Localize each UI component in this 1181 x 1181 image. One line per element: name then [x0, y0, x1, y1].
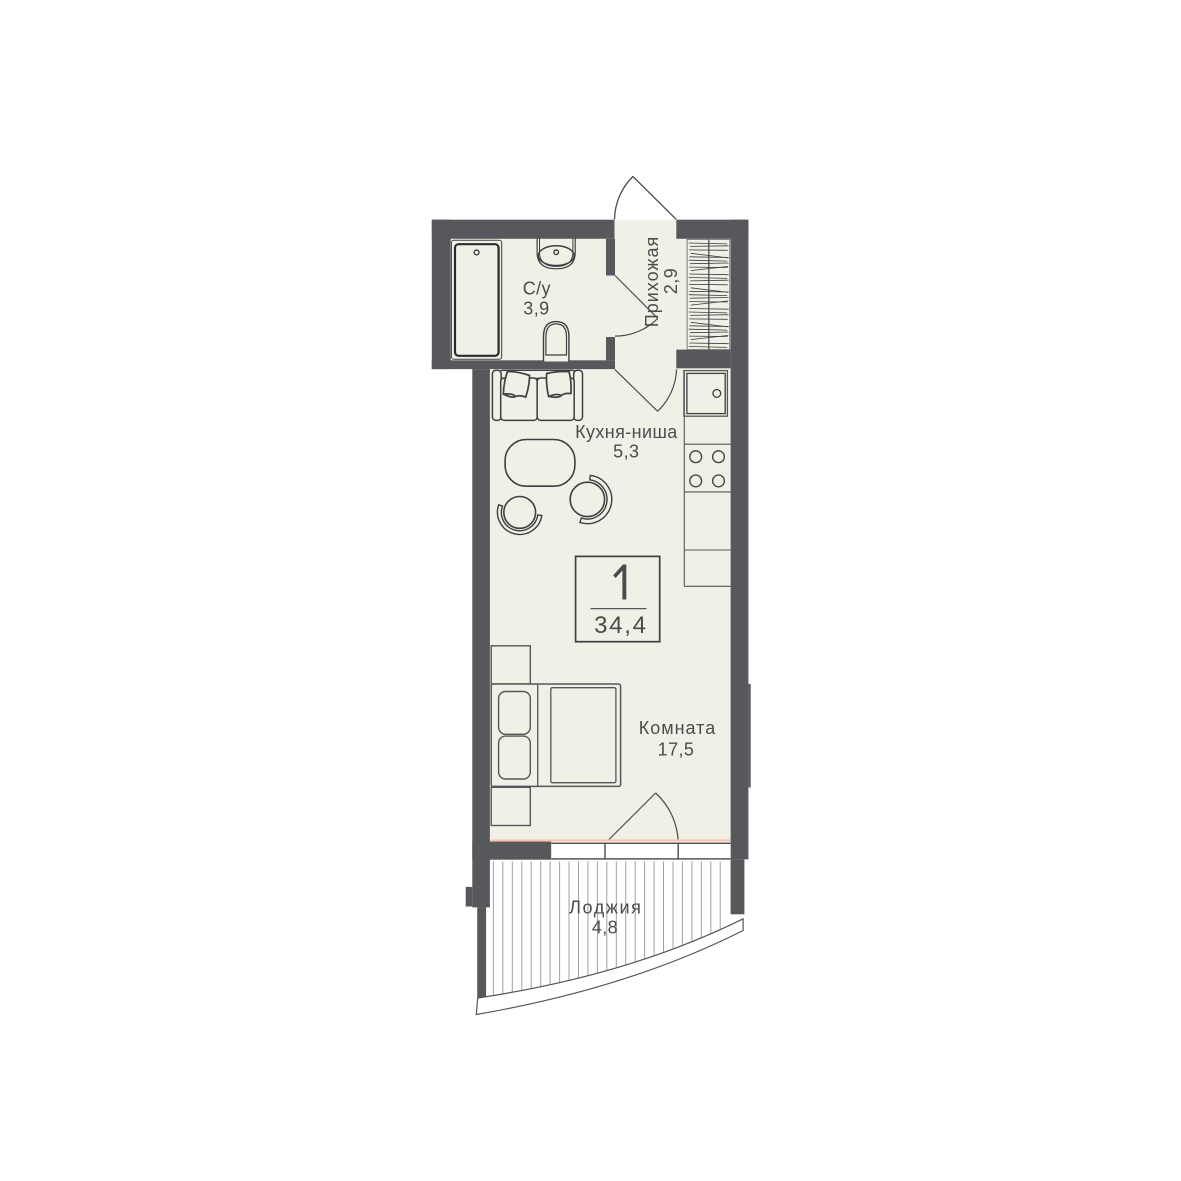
svg-text:2,9: 2,9 [661, 268, 681, 294]
svg-text:Кухня-ниша: Кухня-ниша [575, 422, 678, 442]
svg-text:Комната: Комната [639, 718, 716, 738]
svg-text:3,9: 3,9 [523, 298, 549, 318]
svg-text:5,3: 5,3 [613, 442, 639, 462]
svg-text:4,8: 4,8 [592, 918, 618, 938]
svg-text:Лоджия: Лоджия [569, 898, 642, 918]
svg-text:С/у: С/у [523, 279, 551, 299]
svg-text:17,5: 17,5 [658, 739, 695, 759]
svg-text:34,4: 34,4 [594, 612, 648, 639]
svg-text:Прихожая: Прихожая [642, 236, 662, 327]
